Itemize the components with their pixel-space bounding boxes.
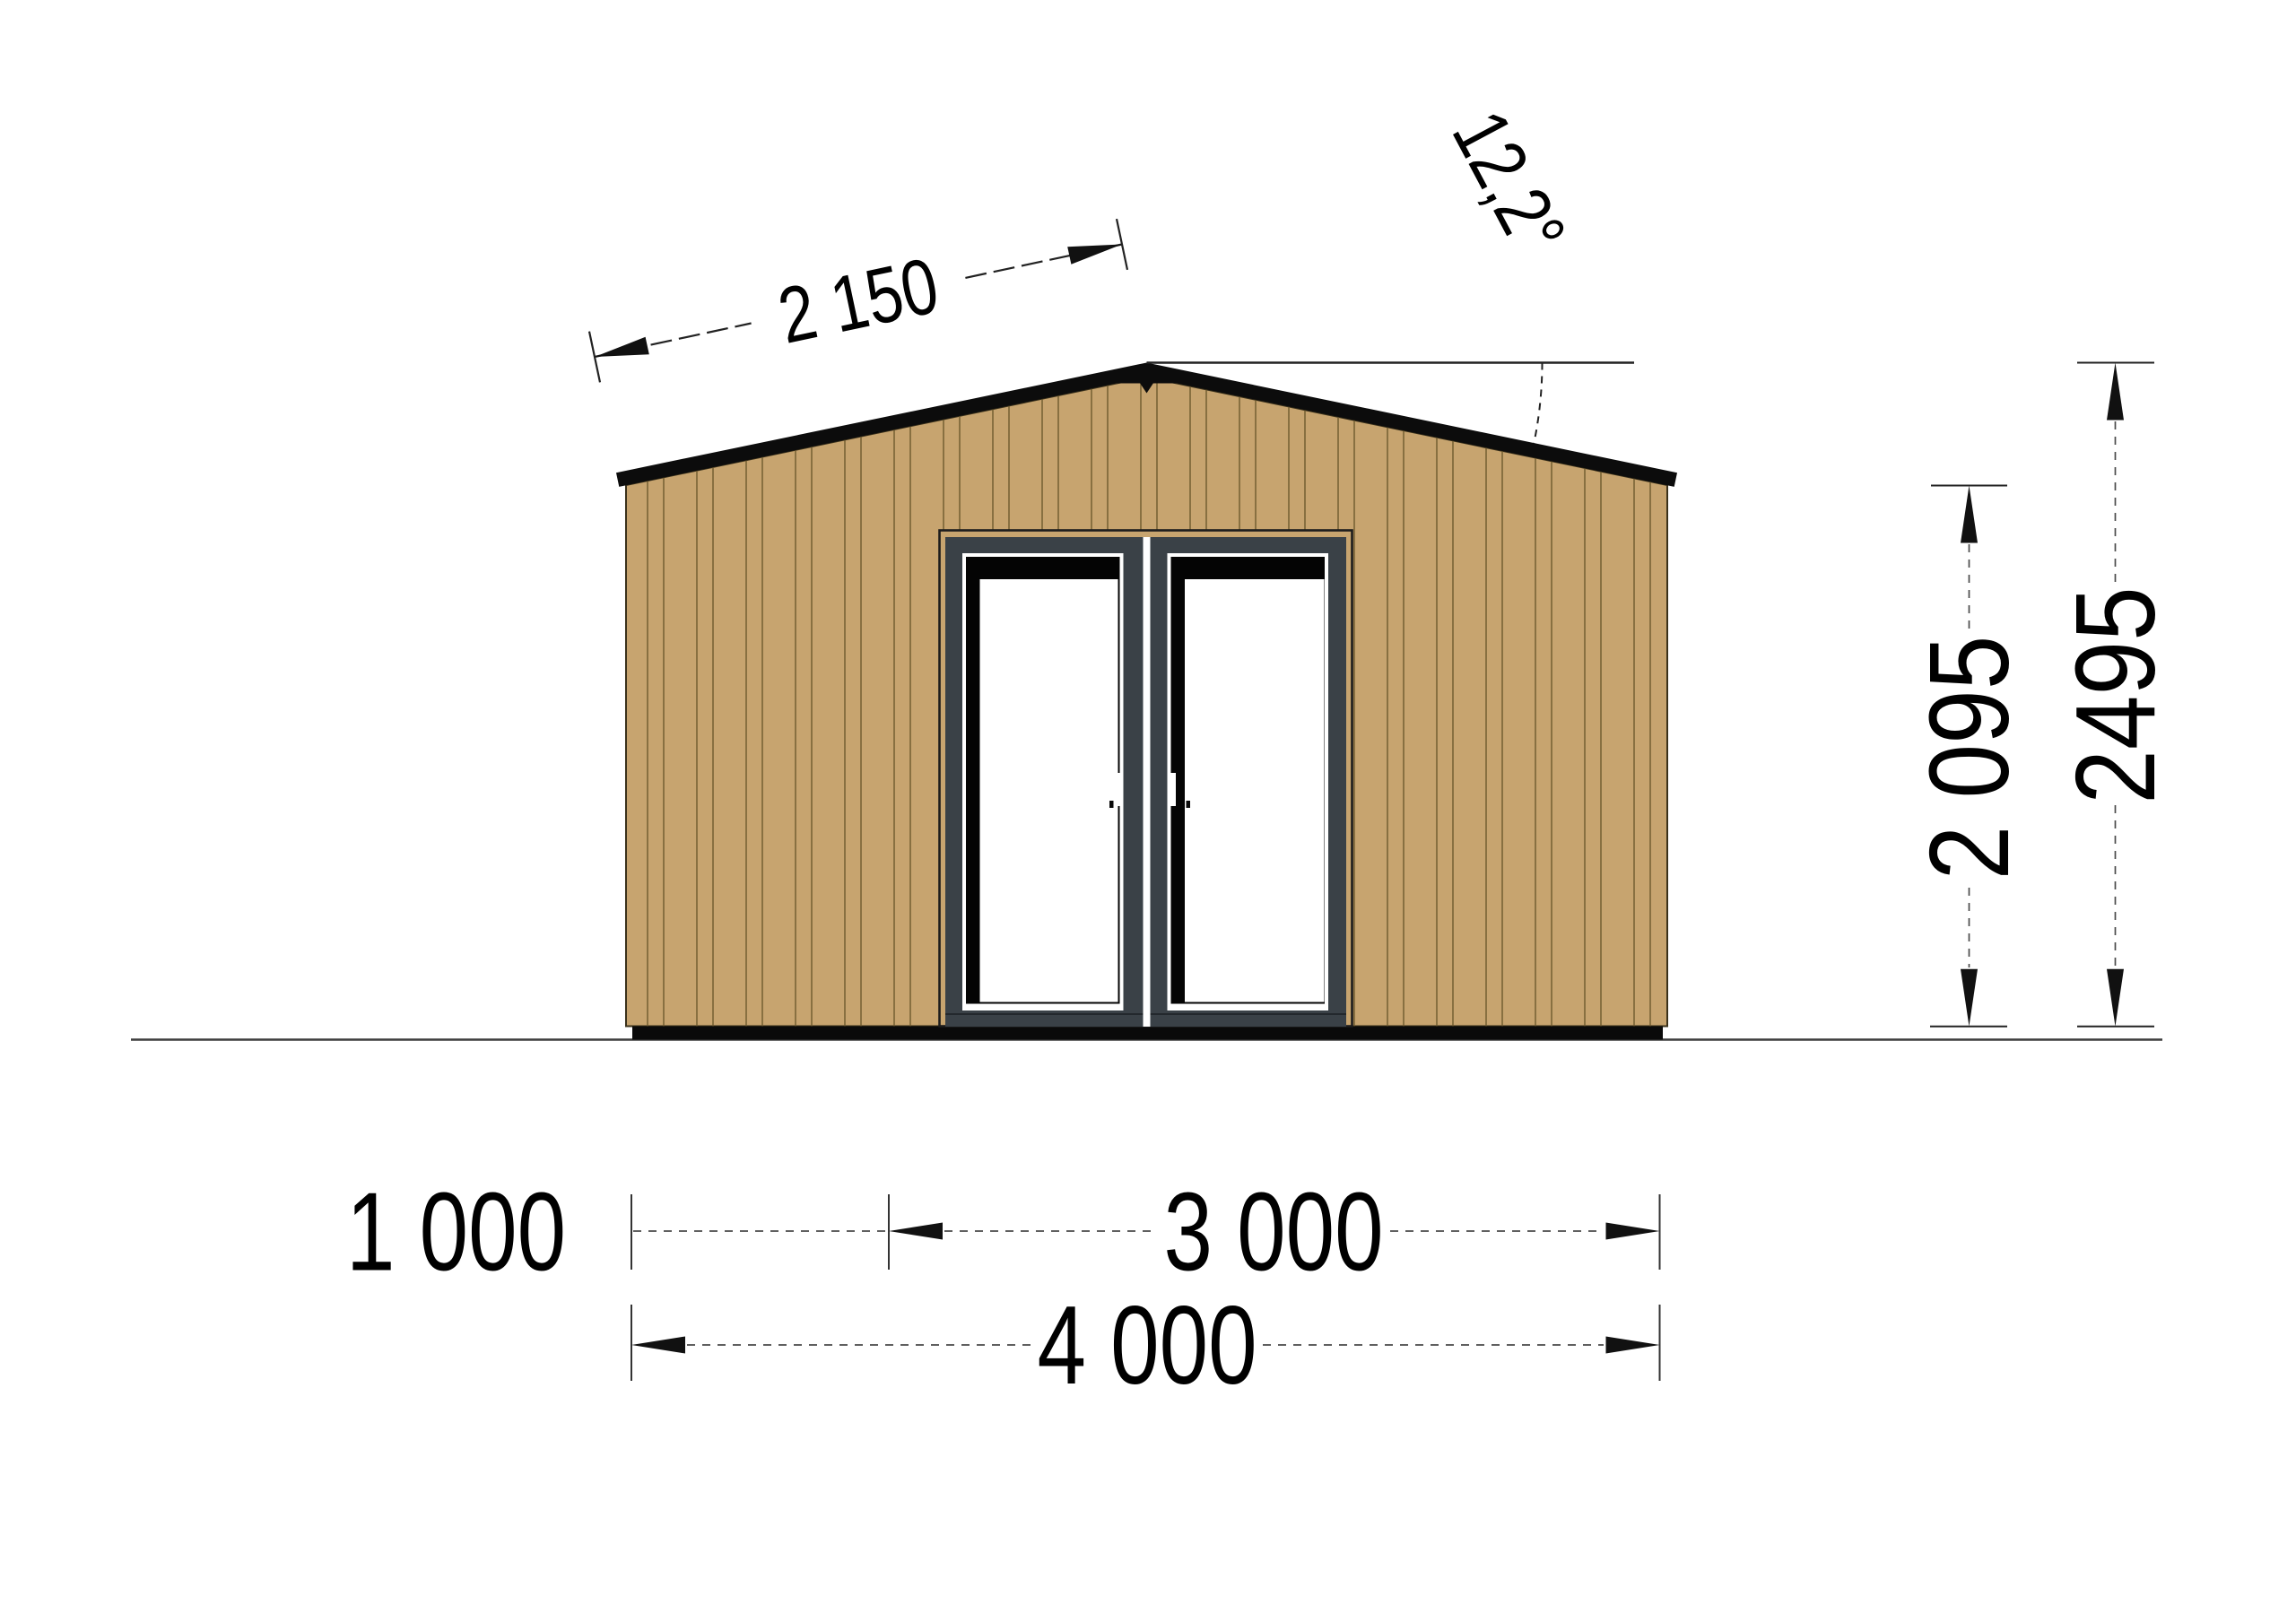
svg-text:2495: 2495 — [2051, 586, 2178, 803]
svg-text:2 095: 2 095 — [1905, 636, 2031, 880]
svg-text:3 000: 3 000 — [1163, 1170, 1383, 1295]
svg-text:4 000: 4 000 — [1037, 1283, 1257, 1408]
svg-text:1 000: 1 000 — [346, 1170, 566, 1295]
